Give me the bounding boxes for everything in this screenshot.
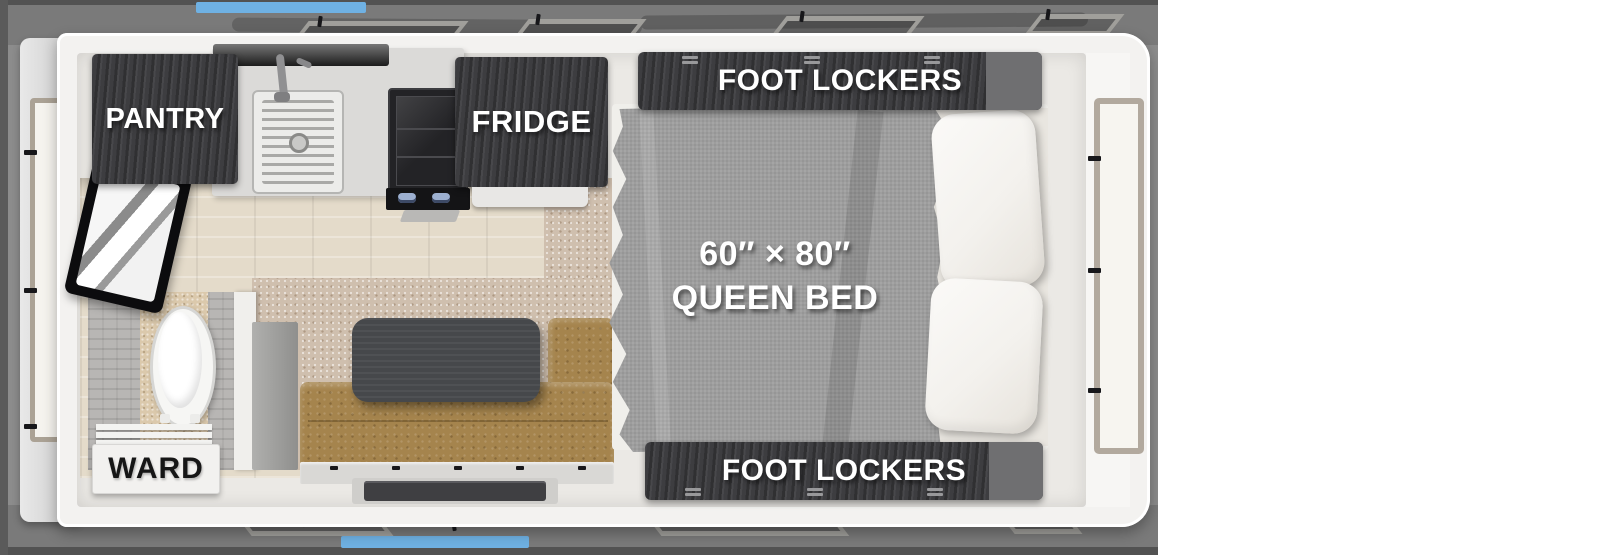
pillow	[930, 109, 1046, 292]
tv-screen	[76, 168, 181, 303]
bed-size-text-block: 60″ × 80″ QUEEN BED	[620, 232, 930, 320]
ledge-hinge	[578, 466, 586, 470]
front-window-hinge	[24, 288, 37, 293]
stove-panel	[396, 96, 460, 186]
locker-latch	[924, 56, 940, 64]
top-edge	[0, 0, 1158, 5]
bottom-edge	[0, 547, 1158, 555]
locker-latch	[807, 488, 823, 496]
ledge-hinge	[330, 466, 338, 470]
toilet-hinge	[190, 414, 200, 423]
bathroom-shelf	[96, 424, 212, 430]
pillow	[924, 277, 1044, 435]
bench-seam	[308, 420, 608, 422]
rear-door-window	[1094, 98, 1144, 454]
bed-name-label: QUEEN BED	[620, 276, 930, 320]
rear-window-hinge	[1088, 156, 1101, 161]
toilet-lid	[158, 312, 202, 408]
left-edge	[0, 0, 8, 555]
stove-grate-line	[396, 128, 460, 130]
front-window-hinge	[24, 150, 37, 155]
ledge-hinge	[454, 466, 462, 470]
ward-label: WARD	[108, 452, 204, 486]
rear-window-hinge	[1088, 268, 1101, 273]
bed-size-label: 60″ × 80″	[620, 232, 930, 276]
locker-latch	[682, 56, 698, 64]
faucet-spout	[274, 92, 290, 102]
stove-vent	[400, 210, 460, 222]
locker-latch	[804, 56, 820, 64]
foot-lockers-bottom: FOOT LOCKERS	[645, 442, 1043, 500]
sink	[252, 90, 344, 194]
fridge-label: FRIDGE	[471, 104, 591, 140]
ledge-hinge	[392, 466, 400, 470]
stove-knob	[432, 193, 450, 203]
locker-latch	[927, 488, 943, 496]
ledge-hinge	[516, 466, 524, 470]
foot-lockers-top: FOOT LOCKERS	[638, 52, 1042, 110]
locker-endcap	[986, 52, 1042, 110]
rear-window-hinge	[1088, 388, 1101, 393]
foot-lockers-bottom-label: FOOT LOCKERS	[722, 454, 966, 488]
sink-drain	[289, 133, 309, 153]
ward-cabinet: WARD	[92, 444, 220, 494]
floorplan-canvas: PANTRY FRIDGE WARD 60″ × 80″	[0, 0, 1600, 555]
foot-lockers-top-label: FOOT LOCKERS	[718, 64, 962, 98]
locker-endcap	[989, 442, 1043, 500]
dinette-side-panel	[252, 322, 298, 470]
front-window-hinge	[24, 424, 37, 429]
locker-latch	[685, 488, 701, 496]
dinette-table	[352, 318, 540, 402]
entry-step-tread	[364, 481, 546, 501]
pantry-label: PANTRY	[106, 103, 225, 136]
stove-knob	[398, 193, 416, 203]
fridge-drawer	[472, 187, 588, 207]
top-blue-marker	[196, 2, 366, 13]
bathroom-shelf	[96, 432, 212, 438]
pantry-cabinet: PANTRY	[92, 54, 238, 184]
bottom-blue-marker	[341, 536, 529, 548]
toilet-hinge	[160, 414, 170, 423]
stove-grate-line	[396, 156, 460, 158]
floorplan-scene: PANTRY FRIDGE WARD 60″ × 80″	[0, 0, 1158, 555]
fridge-cabinet: FRIDGE	[455, 57, 608, 187]
